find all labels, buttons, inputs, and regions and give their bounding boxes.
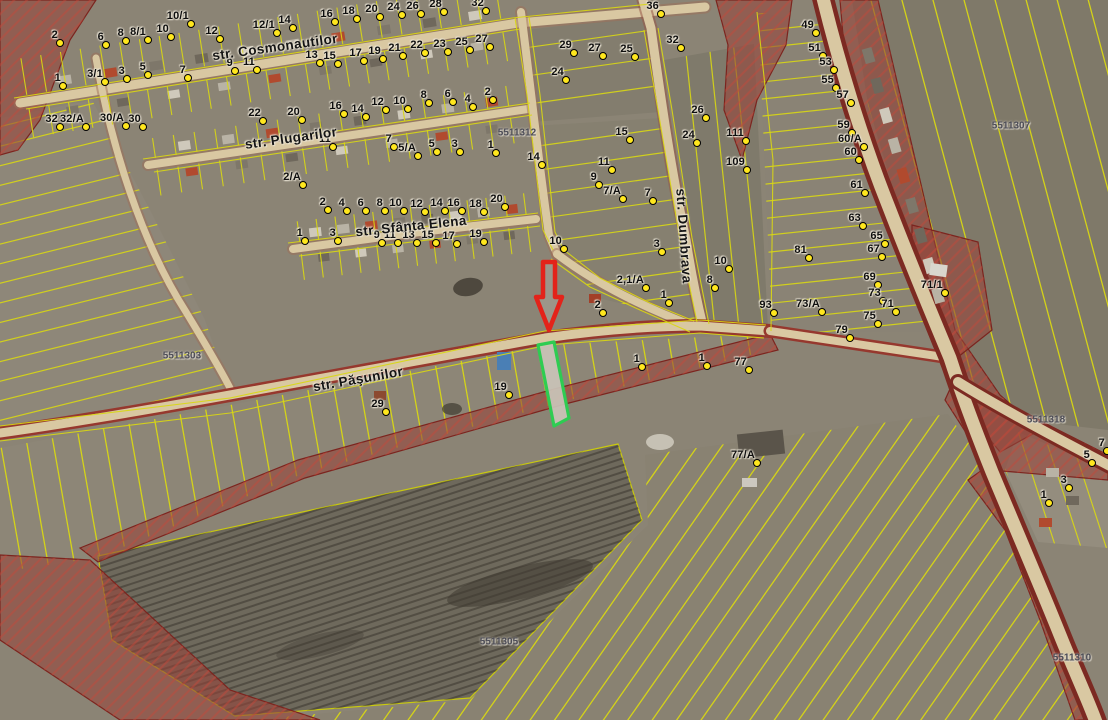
map-canvas[interactable]: 2688/11010/11212/114161820242628323613/1… (0, 0, 1108, 720)
map-graphics (0, 0, 1108, 720)
